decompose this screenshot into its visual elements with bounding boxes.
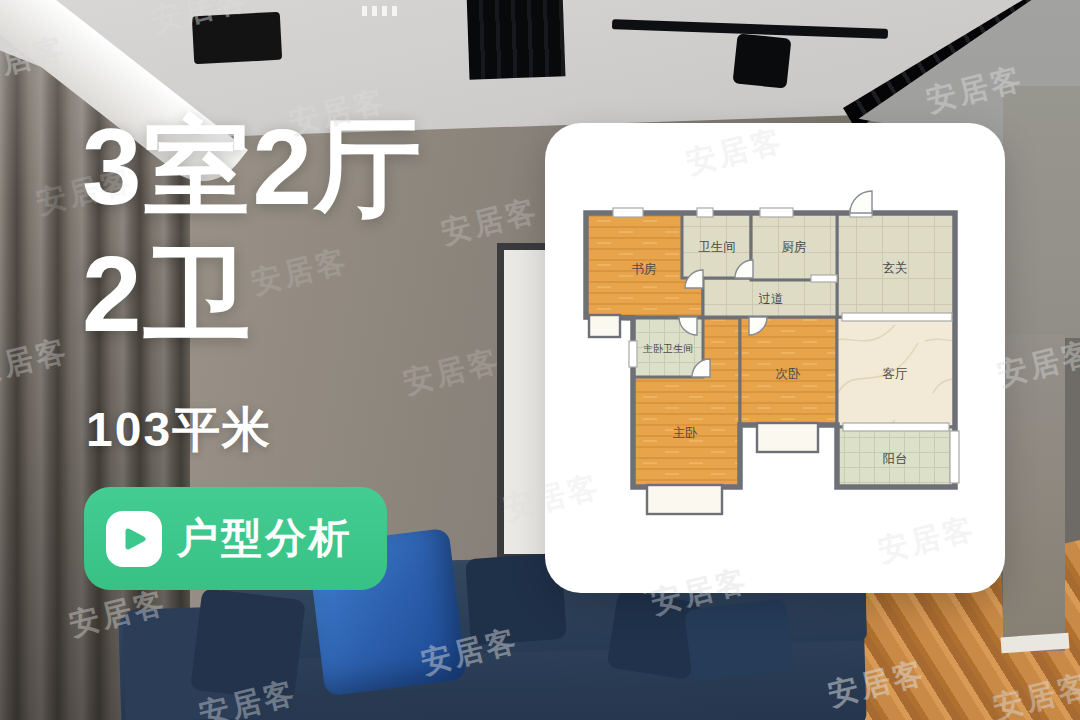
sofa-pillow <box>190 588 306 702</box>
headline: 3室2厅 2卫 <box>82 104 423 359</box>
room-label-study: 书房 <box>632 262 657 276</box>
window <box>629 341 637 367</box>
play-icon <box>106 511 162 567</box>
room-label-balcony: 阳台 <box>883 452 908 466</box>
window <box>613 208 643 217</box>
window <box>811 275 837 282</box>
floorplan-analysis-button[interactable]: 户型分析 <box>84 487 387 590</box>
window <box>589 315 620 337</box>
wall-corner-column <box>1003 335 1065 651</box>
room-label-entry: 玄关 <box>883 261 908 275</box>
area-text: 103平米 <box>86 398 272 462</box>
headline-line1: 3室2厅 <box>82 104 423 231</box>
room-label-living-room: 客厅 <box>883 367 908 381</box>
right-wall-strip <box>1003 86 1080 338</box>
listing-cover: 3室2厅 2卫 103平米 户型分析 <box>0 0 1080 720</box>
room-label-master-bedroom: 主卧 <box>673 426 699 440</box>
spotlight <box>733 33 792 88</box>
floorplan-drawing: 书房主卧主卧卫生间次卧客厅玄关过道卫生间厨房阳台 <box>545 123 1005 593</box>
room-label-hallway: 过道 <box>759 292 784 306</box>
analysis-button-label: 户型分析 <box>177 511 353 566</box>
track-light <box>192 12 282 65</box>
window <box>842 313 952 321</box>
room-label-master-bathroom: 主卧卫生间 <box>642 343 693 354</box>
room-label-second-bedroom: 次卧 <box>776 367 802 381</box>
window <box>757 423 818 452</box>
window <box>760 208 793 217</box>
window <box>843 423 949 431</box>
window <box>697 208 713 217</box>
window <box>647 485 722 514</box>
headline-line2: 2卫 <box>82 231 423 358</box>
room-label-kitchen: 厨房 <box>782 240 807 254</box>
floorplan-card: 书房主卧主卧卫生间次卧客厅玄关过道卫生间厨房阳台 <box>545 123 1005 593</box>
room-label-bathroom: 卫生间 <box>698 240 736 254</box>
entry-door <box>850 191 872 213</box>
sofa-pillow <box>684 598 794 682</box>
ceiling-fixture <box>467 0 566 80</box>
window <box>950 431 959 483</box>
ceiling-lights <box>362 6 398 16</box>
